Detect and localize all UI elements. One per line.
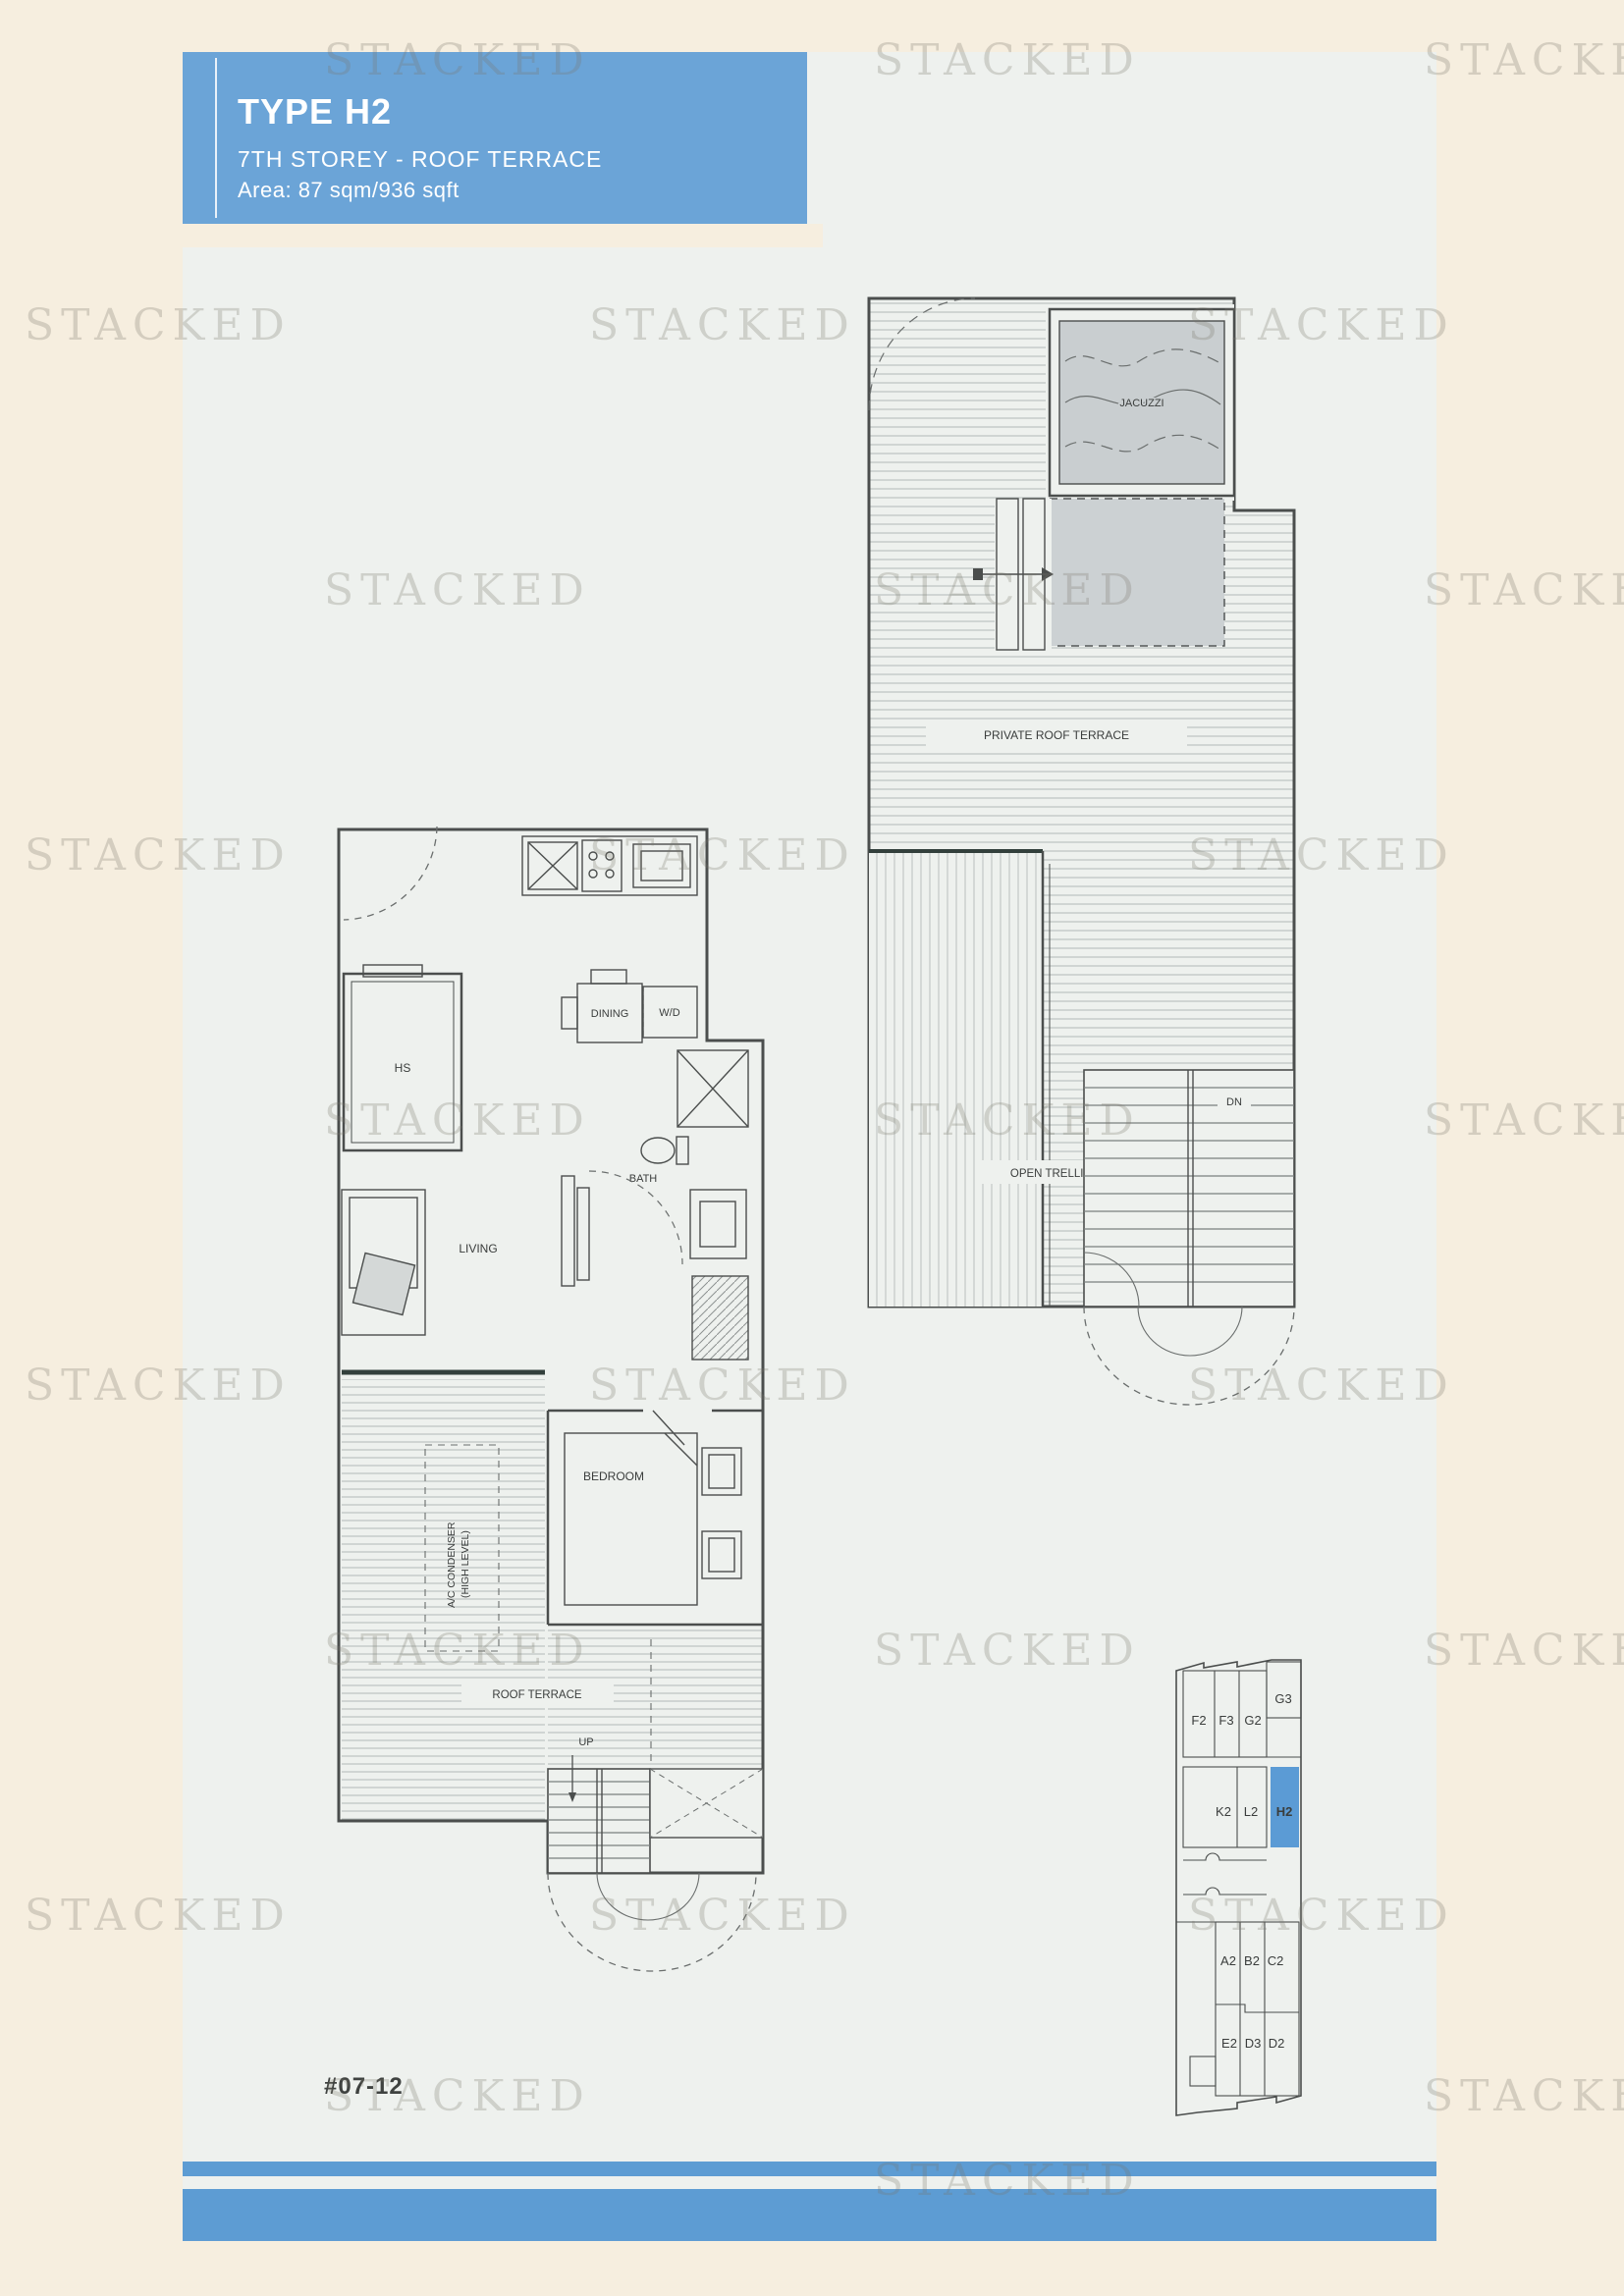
ac-ledge-shaft (692, 1276, 748, 1360)
bathroom-fixtures (641, 1050, 748, 1258)
open-trellis (869, 851, 1050, 1307)
header-shadow-strip (183, 224, 823, 247)
label-ac-line1: A/C CONDENSER (446, 1522, 458, 1608)
footer-band-thin (183, 2162, 1436, 2176)
label-up: UP (578, 1736, 593, 1748)
watermark: STACKED (1424, 565, 1624, 615)
staircase (548, 1755, 763, 1971)
label-private-roof-terrace: PRIVATE ROOF TERRACE (984, 728, 1129, 742)
label-open-trellis: OPEN TRELLIS (1010, 1168, 1092, 1180)
planter-pit (1050, 499, 1224, 646)
label-bath: BATH (629, 1173, 658, 1185)
label-bedroom: BEDROOM (583, 1469, 644, 1483)
label-living: LIVING (459, 1242, 497, 1255)
area-text: Area: 87 sqm/936 sqft (238, 178, 460, 203)
bed (565, 1433, 741, 1605)
unit-f3: F3 (1218, 1713, 1233, 1728)
label-roof-terrace: ROOF TERRACE (492, 1689, 581, 1701)
watermark: STACKED (1424, 1626, 1624, 1676)
type-title: TYPE H2 (238, 91, 392, 133)
label-dining: DINING (591, 1008, 629, 1020)
roof-terrace-plan: JACUZZI PRIVATE ROOF TERRACE OPEN TRELLI… (849, 285, 1340, 1492)
brochure-page: TYPE H2 7TH STOREY - ROOF TERRACE Area: … (0, 0, 1624, 2296)
unit-a2: A2 (1220, 1953, 1236, 1968)
label-ac-line2: (HIGH LEVEL) (460, 1530, 471, 1598)
household-shelter (344, 965, 461, 1150)
dining-set (562, 970, 697, 1042)
label-hs: HS (395, 1061, 411, 1075)
label-wd: W/D (659, 1007, 679, 1019)
entry-door-swing (344, 827, 437, 920)
unit-locator: F2 F3 G2 G3 K2 L2 H2 A2 B2 C2 E2 D3 D2 (1168, 1649, 1311, 2125)
staircase-down (1084, 1070, 1294, 1405)
sofa (342, 1190, 425, 1335)
label-dn: DN (1226, 1096, 1242, 1108)
watermark: STACKED (1424, 1095, 1624, 1146)
unit-b2: B2 (1244, 1953, 1260, 1968)
bath-door-swing (589, 1171, 682, 1264)
unit-k2: K2 (1216, 1804, 1231, 1819)
unit-g2: G2 (1244, 1713, 1261, 1728)
unit-f2: F2 (1191, 1713, 1206, 1728)
unit-l2: L2 (1244, 1804, 1258, 1819)
tv-console (562, 1176, 589, 1286)
unit-e2: E2 (1221, 2036, 1237, 2051)
unit-number: #07-12 (324, 2073, 404, 2101)
unit-g3: G3 (1274, 1691, 1291, 1706)
lower-floor-plan: HS DINING W/D BATH (319, 805, 781, 1983)
unit-d3: D3 (1245, 2036, 1262, 2051)
header-divider (215, 58, 217, 218)
bedroom-walls (548, 1411, 763, 1625)
kitchen-counter (522, 836, 697, 895)
footer-band-thick (183, 2189, 1436, 2241)
unit-c2: C2 (1268, 1953, 1284, 1968)
unit-d2: D2 (1269, 2036, 1285, 2051)
label-jacuzzi: JACUZZI (1119, 398, 1164, 409)
watermark: STACKED (1424, 2071, 1624, 2121)
unit-h2-highlighted: H2 (1276, 1804, 1293, 1819)
storey-subtitle: 7TH STOREY - ROOF TERRACE (238, 146, 602, 173)
type-header: TYPE H2 7TH STOREY - ROOF TERRACE Area: … (183, 52, 807, 224)
watermark: STACKED (1424, 35, 1624, 85)
